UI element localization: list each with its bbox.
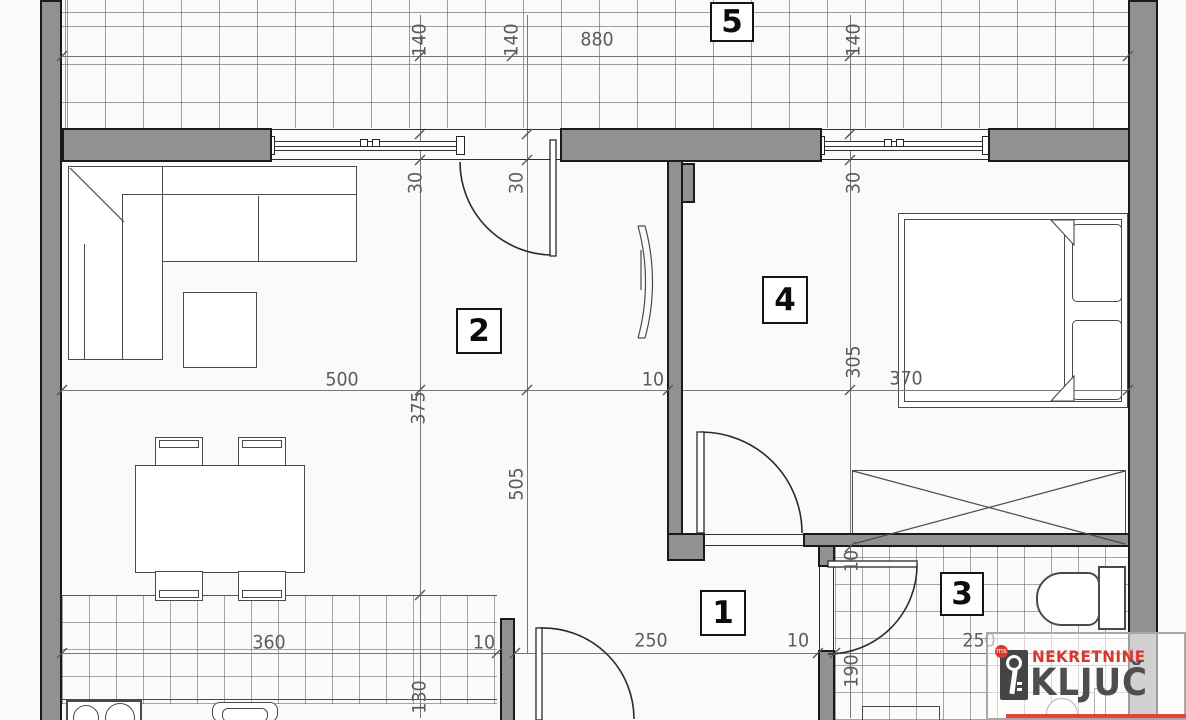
room-label-terrace: 5	[710, 2, 754, 42]
sofa-left-section	[68, 166, 163, 360]
logo-red-bar	[1006, 714, 1186, 718]
top-wall-segment	[62, 128, 272, 162]
window-bedroom	[822, 141, 988, 151]
dim-label: 30	[407, 172, 426, 194]
toilet-tank	[1098, 566, 1126, 630]
dim-label: 250	[634, 632, 667, 651]
dim-line-bottom	[62, 653, 1128, 654]
wall-face-line	[703, 545, 803, 546]
partition-corner	[667, 533, 705, 561]
dim-label: 305	[845, 345, 864, 378]
partition-pillar	[681, 163, 695, 203]
dim-label: 140	[845, 23, 864, 56]
top-wall-segment	[988, 128, 1130, 162]
terrace-tile-floor	[62, 0, 1128, 128]
top-wall-segment	[560, 128, 822, 162]
dim-label: 30	[508, 172, 527, 194]
room-label-hall: 1	[700, 590, 746, 636]
bedroom-door-arc	[701, 432, 802, 533]
dim-label: 130	[411, 680, 430, 713]
dim-label: 370	[889, 370, 922, 389]
window-mullion	[372, 139, 380, 147]
dim-label: 140	[411, 23, 430, 56]
wall-face-line	[833, 567, 834, 652]
logo-text-kljuc: KLJUČ	[1030, 661, 1148, 704]
bedroom-door-leaf	[697, 432, 704, 533]
outer-wall-left	[40, 0, 62, 720]
dim-label: 30	[845, 172, 864, 194]
dim-label: 190	[843, 654, 862, 687]
dining-chair	[238, 571, 286, 601]
wall-kitchen-stub	[500, 618, 515, 720]
wall-hall-bath-lower	[818, 650, 835, 720]
dining-table	[135, 465, 305, 573]
dim-line-top	[62, 56, 1128, 57]
room-label-bedroom: 4	[762, 276, 808, 324]
balcony-door-leaf	[550, 140, 556, 256]
radiator	[638, 226, 653, 338]
dim-label: 10	[843, 550, 862, 572]
shower-tray	[862, 706, 940, 720]
dim-label: 375	[410, 391, 429, 424]
dim-label: 140	[503, 23, 522, 56]
kitchen-sink-basin	[222, 708, 268, 720]
dining-chair	[155, 437, 203, 467]
floor-plan: 140 140 880 140 30 30 30 500 375 505 10 …	[0, 0, 1186, 720]
outer-wall-right	[1128, 0, 1158, 720]
ms-badge: ms	[995, 645, 1008, 658]
dim-label: 10	[473, 634, 495, 653]
window-post	[456, 136, 465, 155]
dim-line-vertical-b	[527, 15, 528, 653]
wall-face-line	[819, 567, 820, 652]
wall-face-line	[703, 534, 803, 535]
sofa-arm-line	[122, 194, 123, 360]
entrance-door-arc	[539, 628, 634, 719]
sofa-back-line	[122, 194, 357, 195]
dim-label: 880	[580, 31, 613, 50]
dim-label: 505	[508, 467, 527, 500]
entrance-door-leaf	[536, 628, 542, 720]
wall-bedroom-hall	[803, 533, 1130, 547]
window-mullion	[896, 139, 904, 147]
agency-logo: ms NEKRETNINE KLJUČ	[986, 632, 1186, 720]
dining-chair	[238, 437, 286, 467]
bed-head-divider	[1064, 219, 1065, 402]
wall-hall-bath-upper	[818, 545, 835, 567]
pillow	[1072, 224, 1122, 302]
room-label-bathroom: 3	[940, 572, 984, 616]
window-mullion	[360, 139, 368, 147]
dining-chair	[155, 571, 203, 601]
sofa-cushion-divider	[258, 196, 259, 262]
window-mullion	[884, 139, 892, 147]
dim-label: 360	[252, 634, 285, 653]
partition-living-bedroom	[667, 160, 683, 547]
pillow	[1072, 320, 1122, 400]
coffee-table	[183, 292, 257, 368]
room-label-living: 2	[456, 308, 502, 354]
sofa-armrest-line	[84, 244, 85, 360]
dim-line-middle	[62, 390, 1128, 391]
toilet-bowl	[1036, 572, 1100, 626]
key-icon: ms	[1000, 650, 1028, 700]
dim-label: 10	[642, 371, 664, 390]
dim-label: 500	[325, 371, 358, 390]
dim-label: 10	[787, 632, 809, 651]
dim-line-vertical-a	[420, 15, 421, 718]
